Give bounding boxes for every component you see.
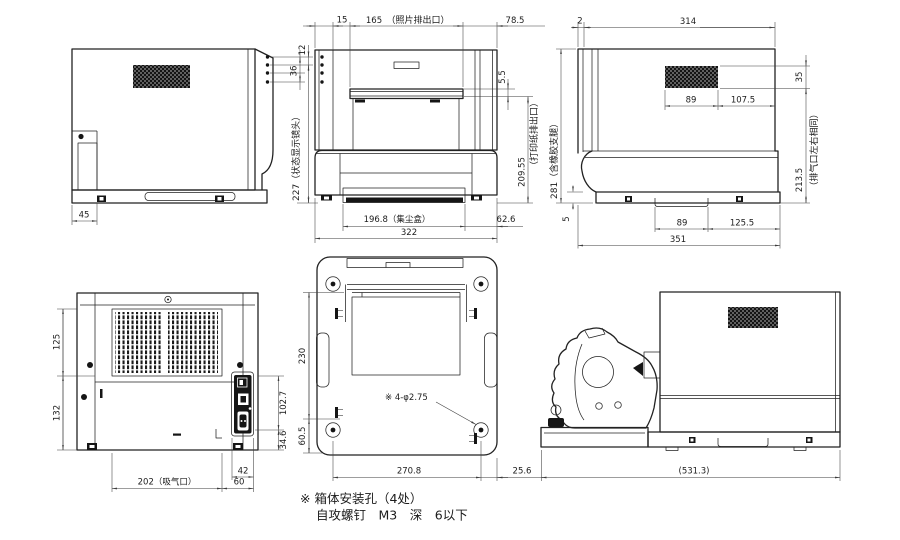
dim-78-5: 78.5 [506,16,525,26]
dim-107-5: 107.5 [731,96,755,106]
rear-view: 125 132 102.7 34.6 42 202（吸气口） 60 [53,293,290,492]
dim-202-intake: 202（吸气口） [138,477,197,488]
dim-196-8-dustbox: 196.8（集尘盒） [364,214,431,225]
dim-227-status-lens: 227（状态显示镜头） [290,112,302,201]
left-side-view: 45 [72,49,273,225]
drawing-canvas: 45 [0,0,900,540]
rear-grille-left [115,312,163,373]
dim-5-5: 5.5 [498,70,508,84]
side-port-panel [78,143,97,190]
carry-handle [347,259,463,268]
dim-314: 314 [680,17,696,27]
front-body [315,50,497,203]
dim-2: 2 [577,17,582,27]
mount-hole-tr [474,277,488,291]
footnote-line1: ※ 箱体安装孔（4处） [300,491,422,506]
mount-hole-tl [326,277,340,291]
dim-36: 36 [290,66,300,77]
dim-213-5: 213.5 [795,168,805,192]
front-view: 15 165 （照片排出口） 78.5 12 36 227（状态显示镜头） 5.… [270,14,545,243]
label-photo-exit: （照片排出口） [386,14,449,26]
dim-165: 165 [366,16,382,26]
dim-62-6: 62.6 [497,215,516,225]
bottom-handle [655,198,708,207]
dim-230: 230 [298,348,308,364]
right-vent [665,66,718,88]
side-vent [133,65,190,88]
footnote: ※ 箱体安装孔（4处） 自攻螺钉 M3 深 6以下 [300,491,468,523]
dim-281-rubber-feet: 281（含橡胶支腿） [548,119,560,199]
left-side-body [72,49,273,203]
dim-15: 15 [337,16,348,26]
side-open-dims: (531.3) [542,450,841,481]
right-side-body [578,49,780,207]
footnote-line2: 自攻螺钉 M3 深 6以下 [316,508,468,523]
label-exhaust-note: （排气口左右相同） [808,109,820,190]
dim-12: 12 [298,45,308,56]
rear-grille-right [168,312,218,373]
front-dims: 15 165 （照片排出口） 78.5 12 36 227（状态显示镜头） 5.… [270,14,545,243]
label-paper-exit: （打印纸排出口） [528,98,540,170]
dim-25-6: 25.6 [513,467,532,477]
dim-102-7: 102.7 [279,391,289,415]
dim-34-6: 34.6 [279,431,289,450]
top-slot [394,62,419,69]
rear-body [77,293,258,450]
dim-132: 132 [53,405,63,421]
note-mount-holes: ※ 4-φ2.75 [385,393,428,403]
dim-270-8: 270.8 [397,467,421,477]
dim-35: 35 [795,72,805,83]
photo-exit-tray [350,89,463,99]
dim-351: 351 [670,235,686,245]
right-side-view: 2 314 89 107.5 35 213.5 （排气口左右相同） 281（含橡… [548,17,820,249]
dim-89-vent: 89 [686,96,697,106]
front-door [353,99,459,151]
left-side-dims: 45 [72,203,97,225]
technical-drawing: 45 [0,0,900,540]
dim-5: 5 [562,216,572,221]
bottom-label-area [352,297,460,375]
dim-60: 60 [234,478,245,488]
dim-60-5: 60.5 [298,427,308,446]
dim-42: 42 [238,467,249,477]
right-side-dims: 2 314 89 107.5 35 213.5 （排气口左右相同） 281（含橡… [548,17,820,249]
bottom-body [317,257,498,455]
dim-209-55: 209.55 [518,157,528,187]
dim-89-handle: 89 [677,219,688,229]
side-open-vent [728,307,778,328]
side-open-view: (531.3) [541,292,840,481]
print-mechanism [541,328,660,447]
side-open-body [648,292,840,451]
dim-531-3: (531.3) [679,467,710,477]
dim-45: 45 [79,211,90,221]
dim-125: 125 [53,334,63,350]
power-panel [232,372,254,436]
dim-322: 322 [401,228,417,238]
dim-125-5: 125.5 [730,219,754,229]
bottom-view: ※ 4-φ2.75 230 60.5 270.8 25.6 [298,257,543,481]
bottom-dims: ※ 4-φ2.75 230 60.5 270.8 25.6 [298,293,543,482]
mount-hole-bl [326,423,340,437]
status-leds [266,55,269,83]
